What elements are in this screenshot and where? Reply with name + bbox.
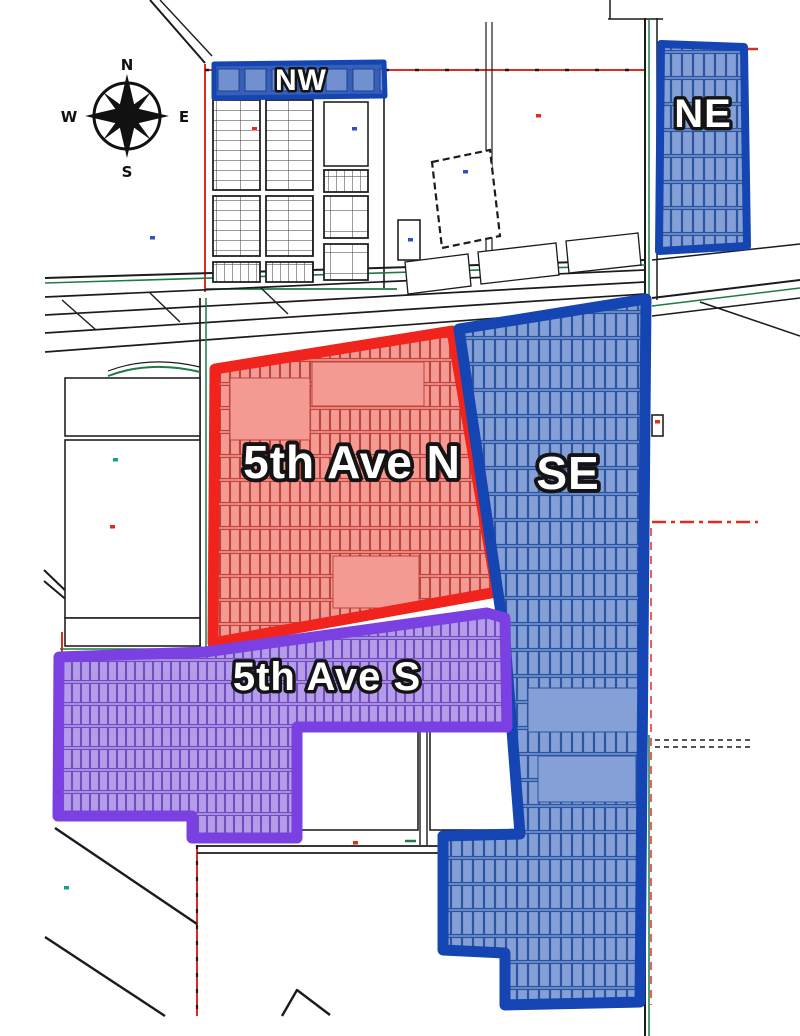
plat-map-svg: 5th Ave NSE5th Ave SNWNENESW bbox=[0, 0, 800, 1036]
map-annotation-mark bbox=[655, 420, 660, 424]
zone-se-label: SE bbox=[536, 447, 599, 499]
zone-fifth-ave-n[interactable]: 5th Ave N bbox=[213, 331, 497, 643]
zone-ne[interactable]: NE bbox=[659, 44, 747, 251]
compass-label-w: W bbox=[61, 108, 78, 126]
compass-label-n: N bbox=[121, 56, 134, 74]
zone-nw[interactable]: NW bbox=[214, 62, 385, 98]
map-annotation-mark bbox=[352, 127, 357, 131]
zone-nw-label: NW bbox=[275, 64, 327, 97]
map-annotation-mark bbox=[150, 236, 155, 240]
open-parcel bbox=[538, 756, 636, 802]
plat-map[interactable]: 5th Ave NSE5th Ave SNWNENESW bbox=[0, 0, 800, 1036]
open-parcel bbox=[230, 378, 310, 440]
map-annotation-mark bbox=[64, 886, 69, 890]
map-annotation-mark bbox=[113, 458, 118, 462]
map-annotation-mark bbox=[408, 238, 413, 242]
compass-label-e: E bbox=[179, 108, 189, 126]
map-annotation-mark bbox=[463, 170, 468, 174]
map-annotation-mark bbox=[110, 525, 115, 529]
zone-ne-label: NE bbox=[674, 92, 732, 136]
map-annotation-mark bbox=[353, 841, 358, 845]
open-parcel bbox=[333, 556, 419, 608]
map-viewport[interactable]: 5th Ave NSE5th Ave SNWNENESW bbox=[0, 0, 800, 1036]
compass-label-s: S bbox=[122, 163, 133, 181]
zone-fifth-ave-n-label: 5th Ave N bbox=[243, 436, 461, 488]
open-parcel bbox=[528, 688, 638, 732]
map-annotation-mark bbox=[536, 114, 541, 118]
open-parcel bbox=[312, 362, 424, 406]
compass-rose: NESW bbox=[61, 56, 189, 181]
map-annotation-mark bbox=[252, 127, 257, 131]
zone-fifth-ave-s-label: 5th Ave S bbox=[233, 655, 421, 699]
